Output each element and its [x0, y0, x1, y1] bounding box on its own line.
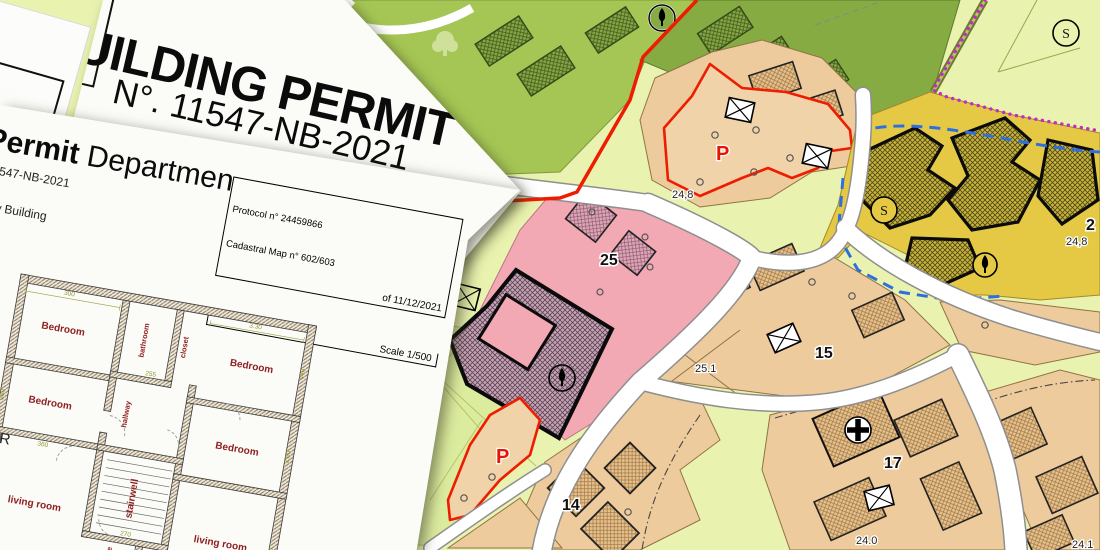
parcel-25-label: 25 — [600, 252, 618, 269]
dim-24-1: 24.1 — [1072, 539, 1093, 550]
parking-p-bottom: P — [496, 446, 509, 468]
parcel-2-label: 2 — [1086, 217, 1095, 234]
dim-24-8-right: 24,8 — [1066, 236, 1087, 248]
s-symbol: S — [871, 197, 897, 223]
parcel-14-label: 14 — [562, 497, 580, 514]
cadastral-map: S S 25 15 14 17 25.1 2 24,8 24,8 24.0 24… — [0, 0, 1100, 550]
illustration-building-permit-over-cadastral-map: S S 25 15 14 17 25.1 2 24,8 24,8 24.0 24… — [0, 0, 1100, 550]
parking-p-top: P — [716, 143, 729, 165]
cross-in-circle-icon — [845, 417, 871, 443]
svg-text:S: S — [1062, 27, 1070, 42]
parcel-17-label: 17 — [884, 455, 902, 472]
map-fragment-box: MAP — [0, 36, 65, 129]
parcel-25-1-label: 25.1 — [695, 363, 716, 375]
svg-text:S: S — [880, 204, 888, 219]
dim-24-8-top: 24,8 — [672, 189, 693, 201]
dim-24-0: 24.0 — [856, 535, 877, 547]
parcel-15-label: 15 — [815, 345, 833, 362]
s-symbol: S — [1053, 20, 1079, 46]
tree-in-circle-icon — [973, 253, 997, 277]
